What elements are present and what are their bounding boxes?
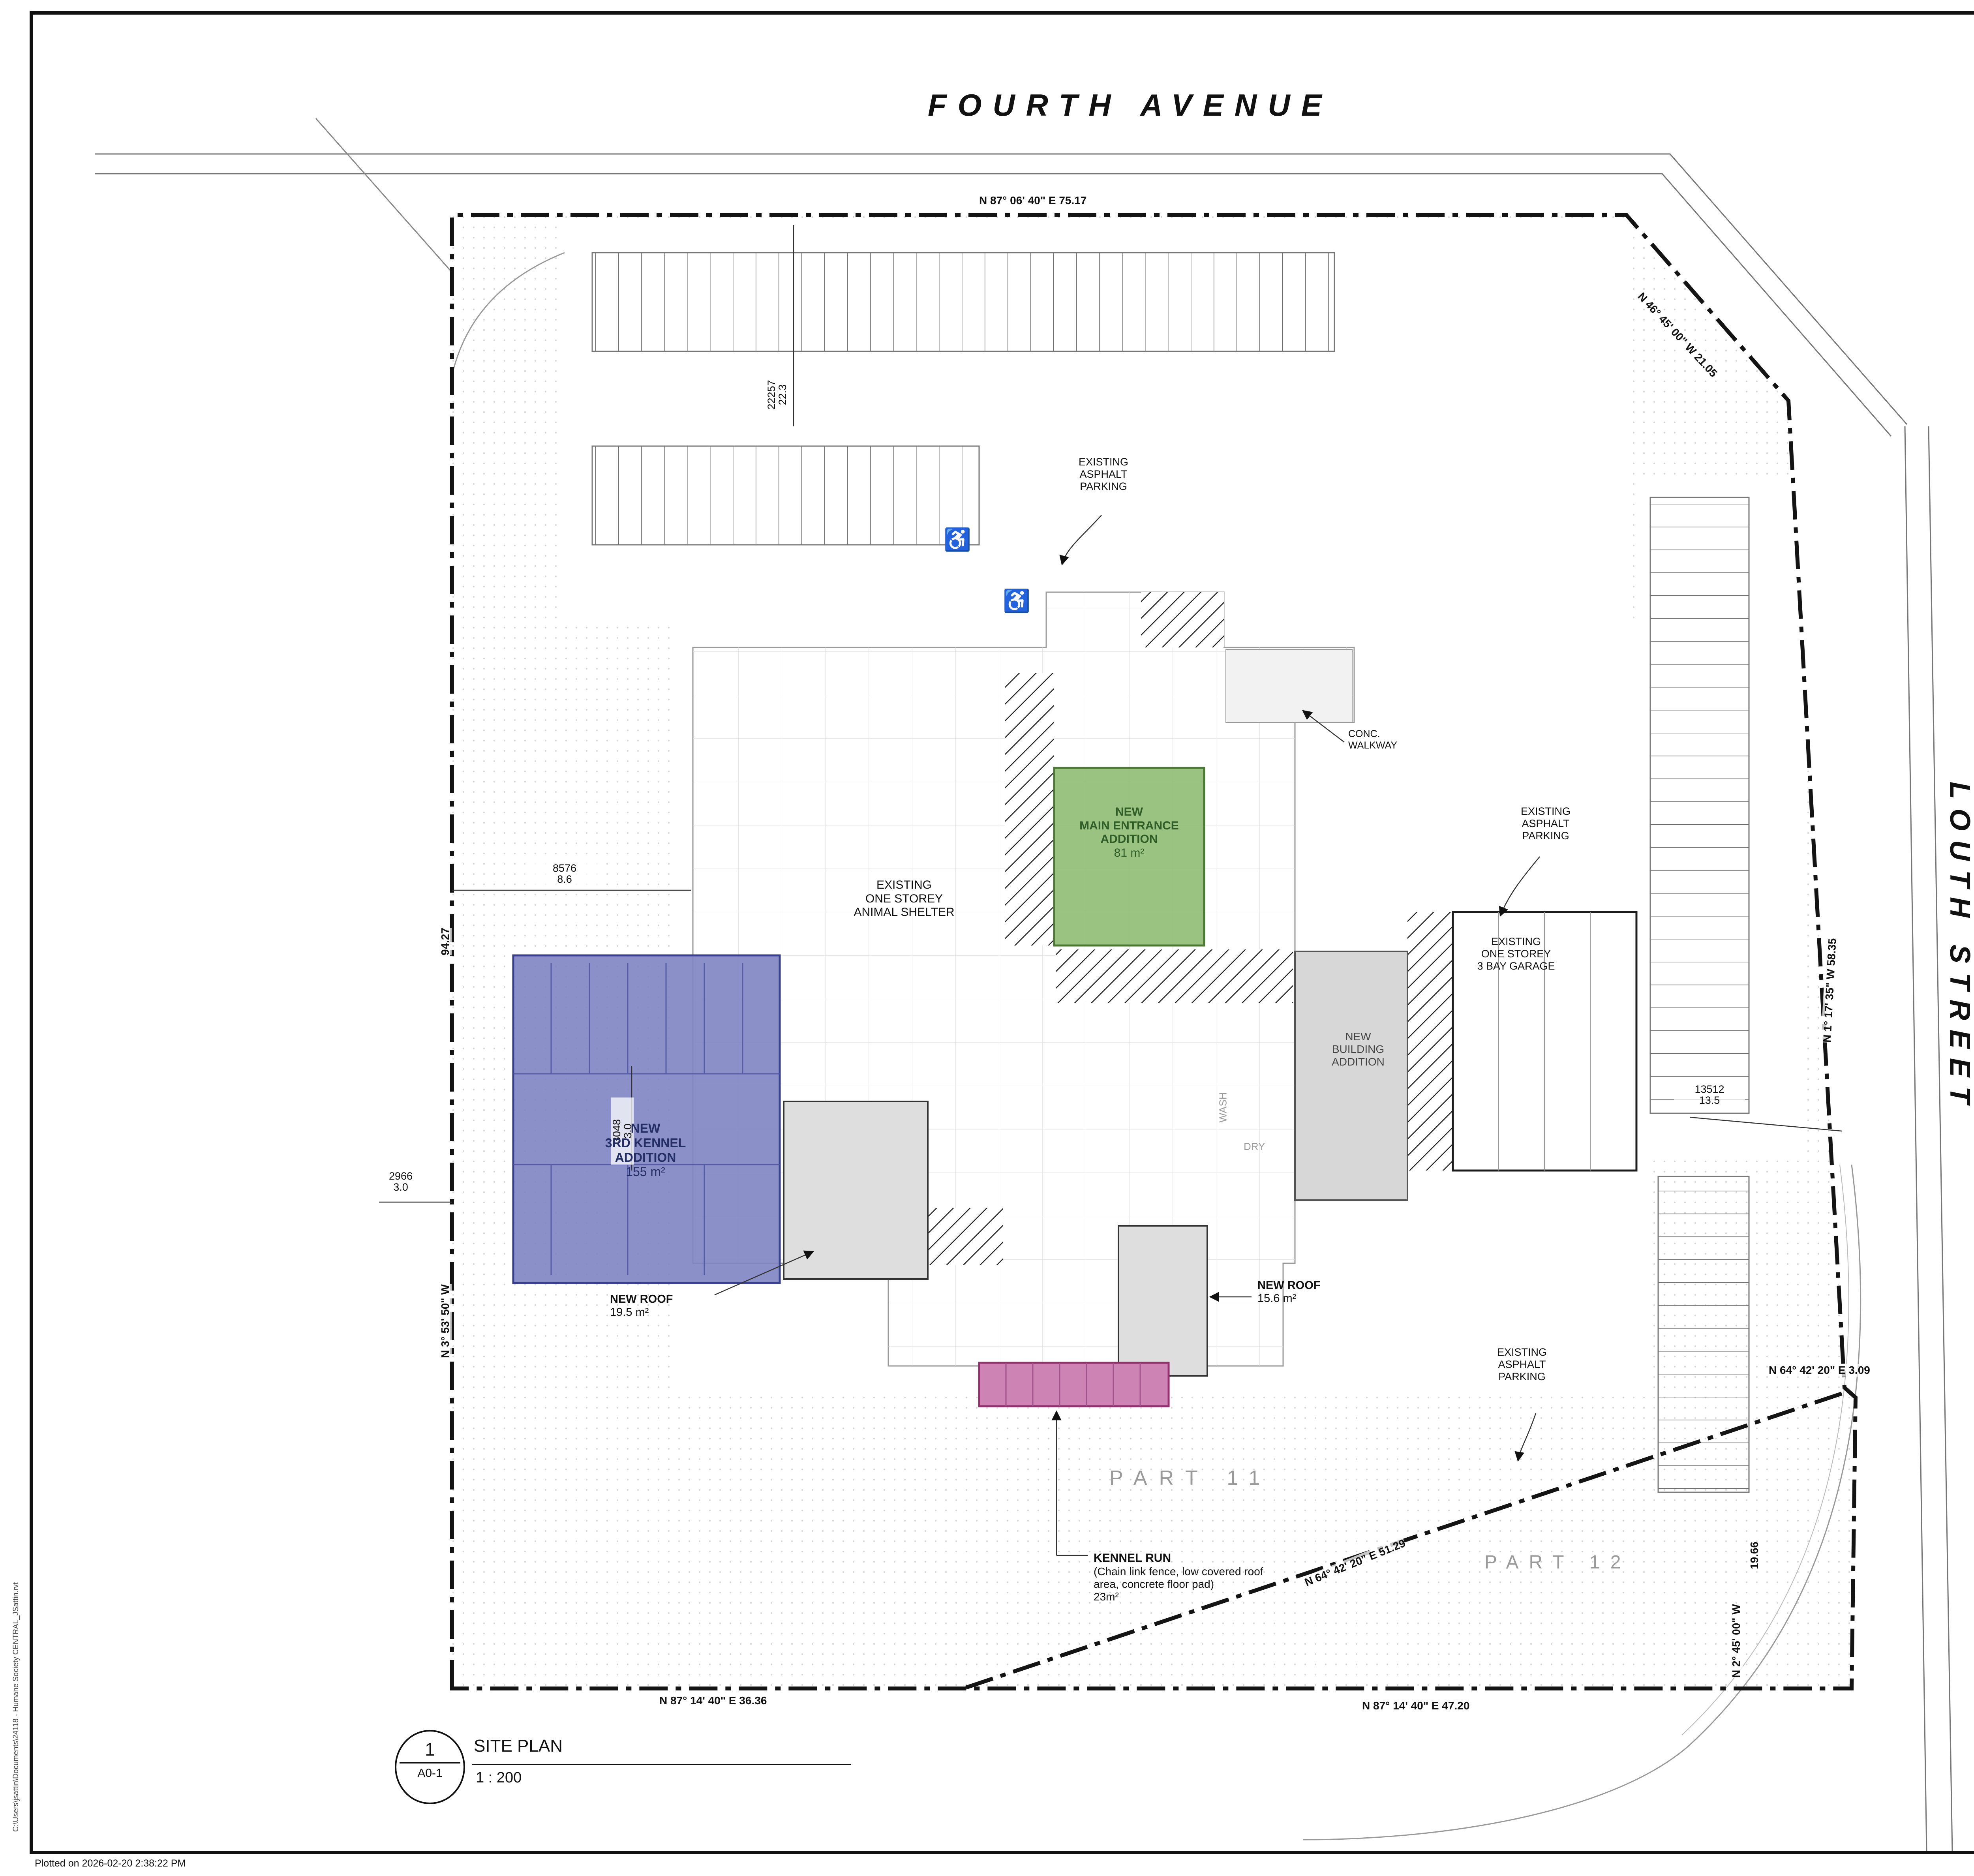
plotted-on-text: Plotted on 2026-02-20 2:38:22 PM — [35, 1858, 186, 1869]
drawing-sheet: FOURTH AVENUE LOUTH STREET N 87° 06' 40"… — [0, 0, 1974, 1876]
sheet-border — [30, 11, 1974, 1854]
file-path-text: C:\Users\jsattin\Documents\24118 - Human… — [12, 1582, 21, 1832]
